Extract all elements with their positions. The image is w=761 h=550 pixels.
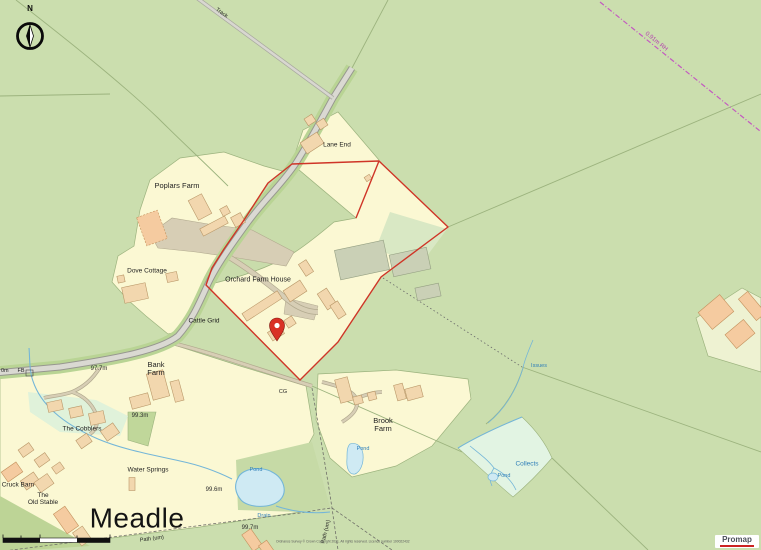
- map-canvas[interactable]: N Track 0.91m RH Lane End Poplars Farm D…: [0, 0, 761, 550]
- building: [117, 275, 125, 283]
- map-attribution: Ordnance Survey © Crown Copyright 2021. …: [276, 540, 364, 543]
- promap-logo-tagline: [720, 545, 754, 547]
- building: [367, 391, 377, 401]
- promap-logo-text: Promap: [722, 536, 752, 544]
- building: [166, 271, 179, 282]
- building: [129, 478, 135, 491]
- pond-collects: [488, 473, 498, 481]
- map-drawing: [0, 0, 761, 550]
- promap-logo: Promap: [715, 535, 759, 548]
